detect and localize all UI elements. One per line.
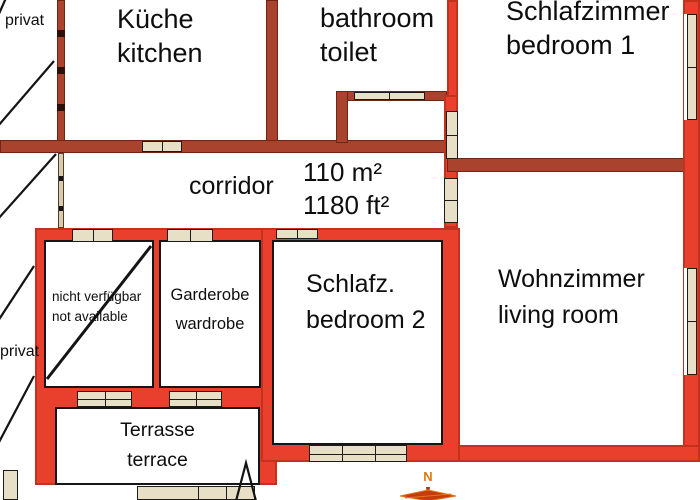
label-terrace-de: Terrasse: [65, 415, 250, 445]
door-symbol-wardrobe-terrace: [169, 391, 222, 407]
wall-bedroom1-bottom: [447, 158, 700, 172]
label-wardrobe-en: wardrobe: [159, 310, 261, 339]
compass-rose: [400, 487, 456, 500]
label-kitchen: Küche kitchen: [117, 2, 203, 70]
wall-kitchen-bathroom: [266, 0, 278, 143]
partition-mark: [59, 206, 63, 211]
wall-bathroom-stub: [336, 91, 348, 143]
label-bedroom1-en: bedroom 1: [506, 28, 670, 62]
window-symbol-bedroom1: [687, 14, 697, 120]
label-bedroom1-de: Schlafzimmer: [506, 0, 670, 28]
label-area: 110 m² 1180 ft²: [303, 156, 389, 222]
label-living-room: Wohnzimmer living room: [498, 261, 645, 334]
door-symbol-bathroom: [354, 92, 425, 100]
label-bedroom1: Schlafzimmer bedroom 1: [506, 0, 670, 62]
label-privat-left: privat: [0, 342, 39, 362]
partition-corridor-left: [58, 153, 64, 228]
compass-north-label: N: [420, 469, 436, 484]
window-symbol-living: [687, 268, 697, 375]
label-area-imperial: 1180 ft²: [303, 189, 389, 222]
stairs-symbol-outside: [3, 470, 18, 500]
label-terrace: Terrasse terrace: [65, 415, 250, 475]
label-wardrobe: Garderobe wardrobe: [159, 281, 261, 339]
window-symbol-corridor-upper: [446, 111, 458, 159]
door-symbol-kitchen: [142, 141, 182, 152]
label-living-room-de: Wohnzimmer: [498, 261, 645, 297]
label-bedroom2: Schlafz. bedroom 2: [306, 266, 426, 339]
label-unavailable: nicht verfügbar not available: [52, 287, 141, 326]
stairs-symbol: [137, 486, 255, 500]
door-symbol-unavailable: [72, 229, 113, 242]
door-symbol-wardrobe: [167, 229, 213, 242]
label-kitchen-de: Küche: [117, 2, 203, 36]
label-unavailable-en: not available: [52, 307, 141, 327]
door-symbol-unavailable-terrace: [77, 391, 132, 407]
label-bedroom2-en: bedroom 2: [306, 302, 426, 338]
label-corridor: corridor: [189, 171, 274, 203]
label-bathroom-line1: bathroom: [320, 1, 434, 35]
label-terrace-en: terrace: [65, 445, 250, 475]
wall-corridor-top: [0, 140, 458, 153]
label-bathroom: bathroom toilet: [320, 1, 434, 69]
label-bathroom-line2: toilet: [320, 35, 434, 69]
label-bedroom2-de: Schlafz.: [306, 266, 426, 302]
window-symbol-corridor-lower: [444, 178, 458, 223]
door-symbol-bedroom2: [276, 229, 318, 239]
floor-plan: privat Küche kitchen bathroom toilet Sch…: [0, 0, 700, 500]
label-kitchen-en: kitchen: [117, 36, 203, 70]
label-living-room-en: living room: [498, 297, 645, 333]
label-area-metric: 110 m²: [303, 156, 389, 189]
label-privat-top: privat: [5, 11, 44, 31]
wall-kitchen-left: [57, 0, 65, 153]
partition-mark: [59, 176, 63, 181]
window-symbol-bedroom2: [309, 445, 407, 462]
label-wardrobe-de: Garderobe: [159, 281, 261, 310]
label-unavailable-de: nicht verfügbar: [52, 287, 141, 307]
wall-living-bottom: [458, 445, 700, 462]
